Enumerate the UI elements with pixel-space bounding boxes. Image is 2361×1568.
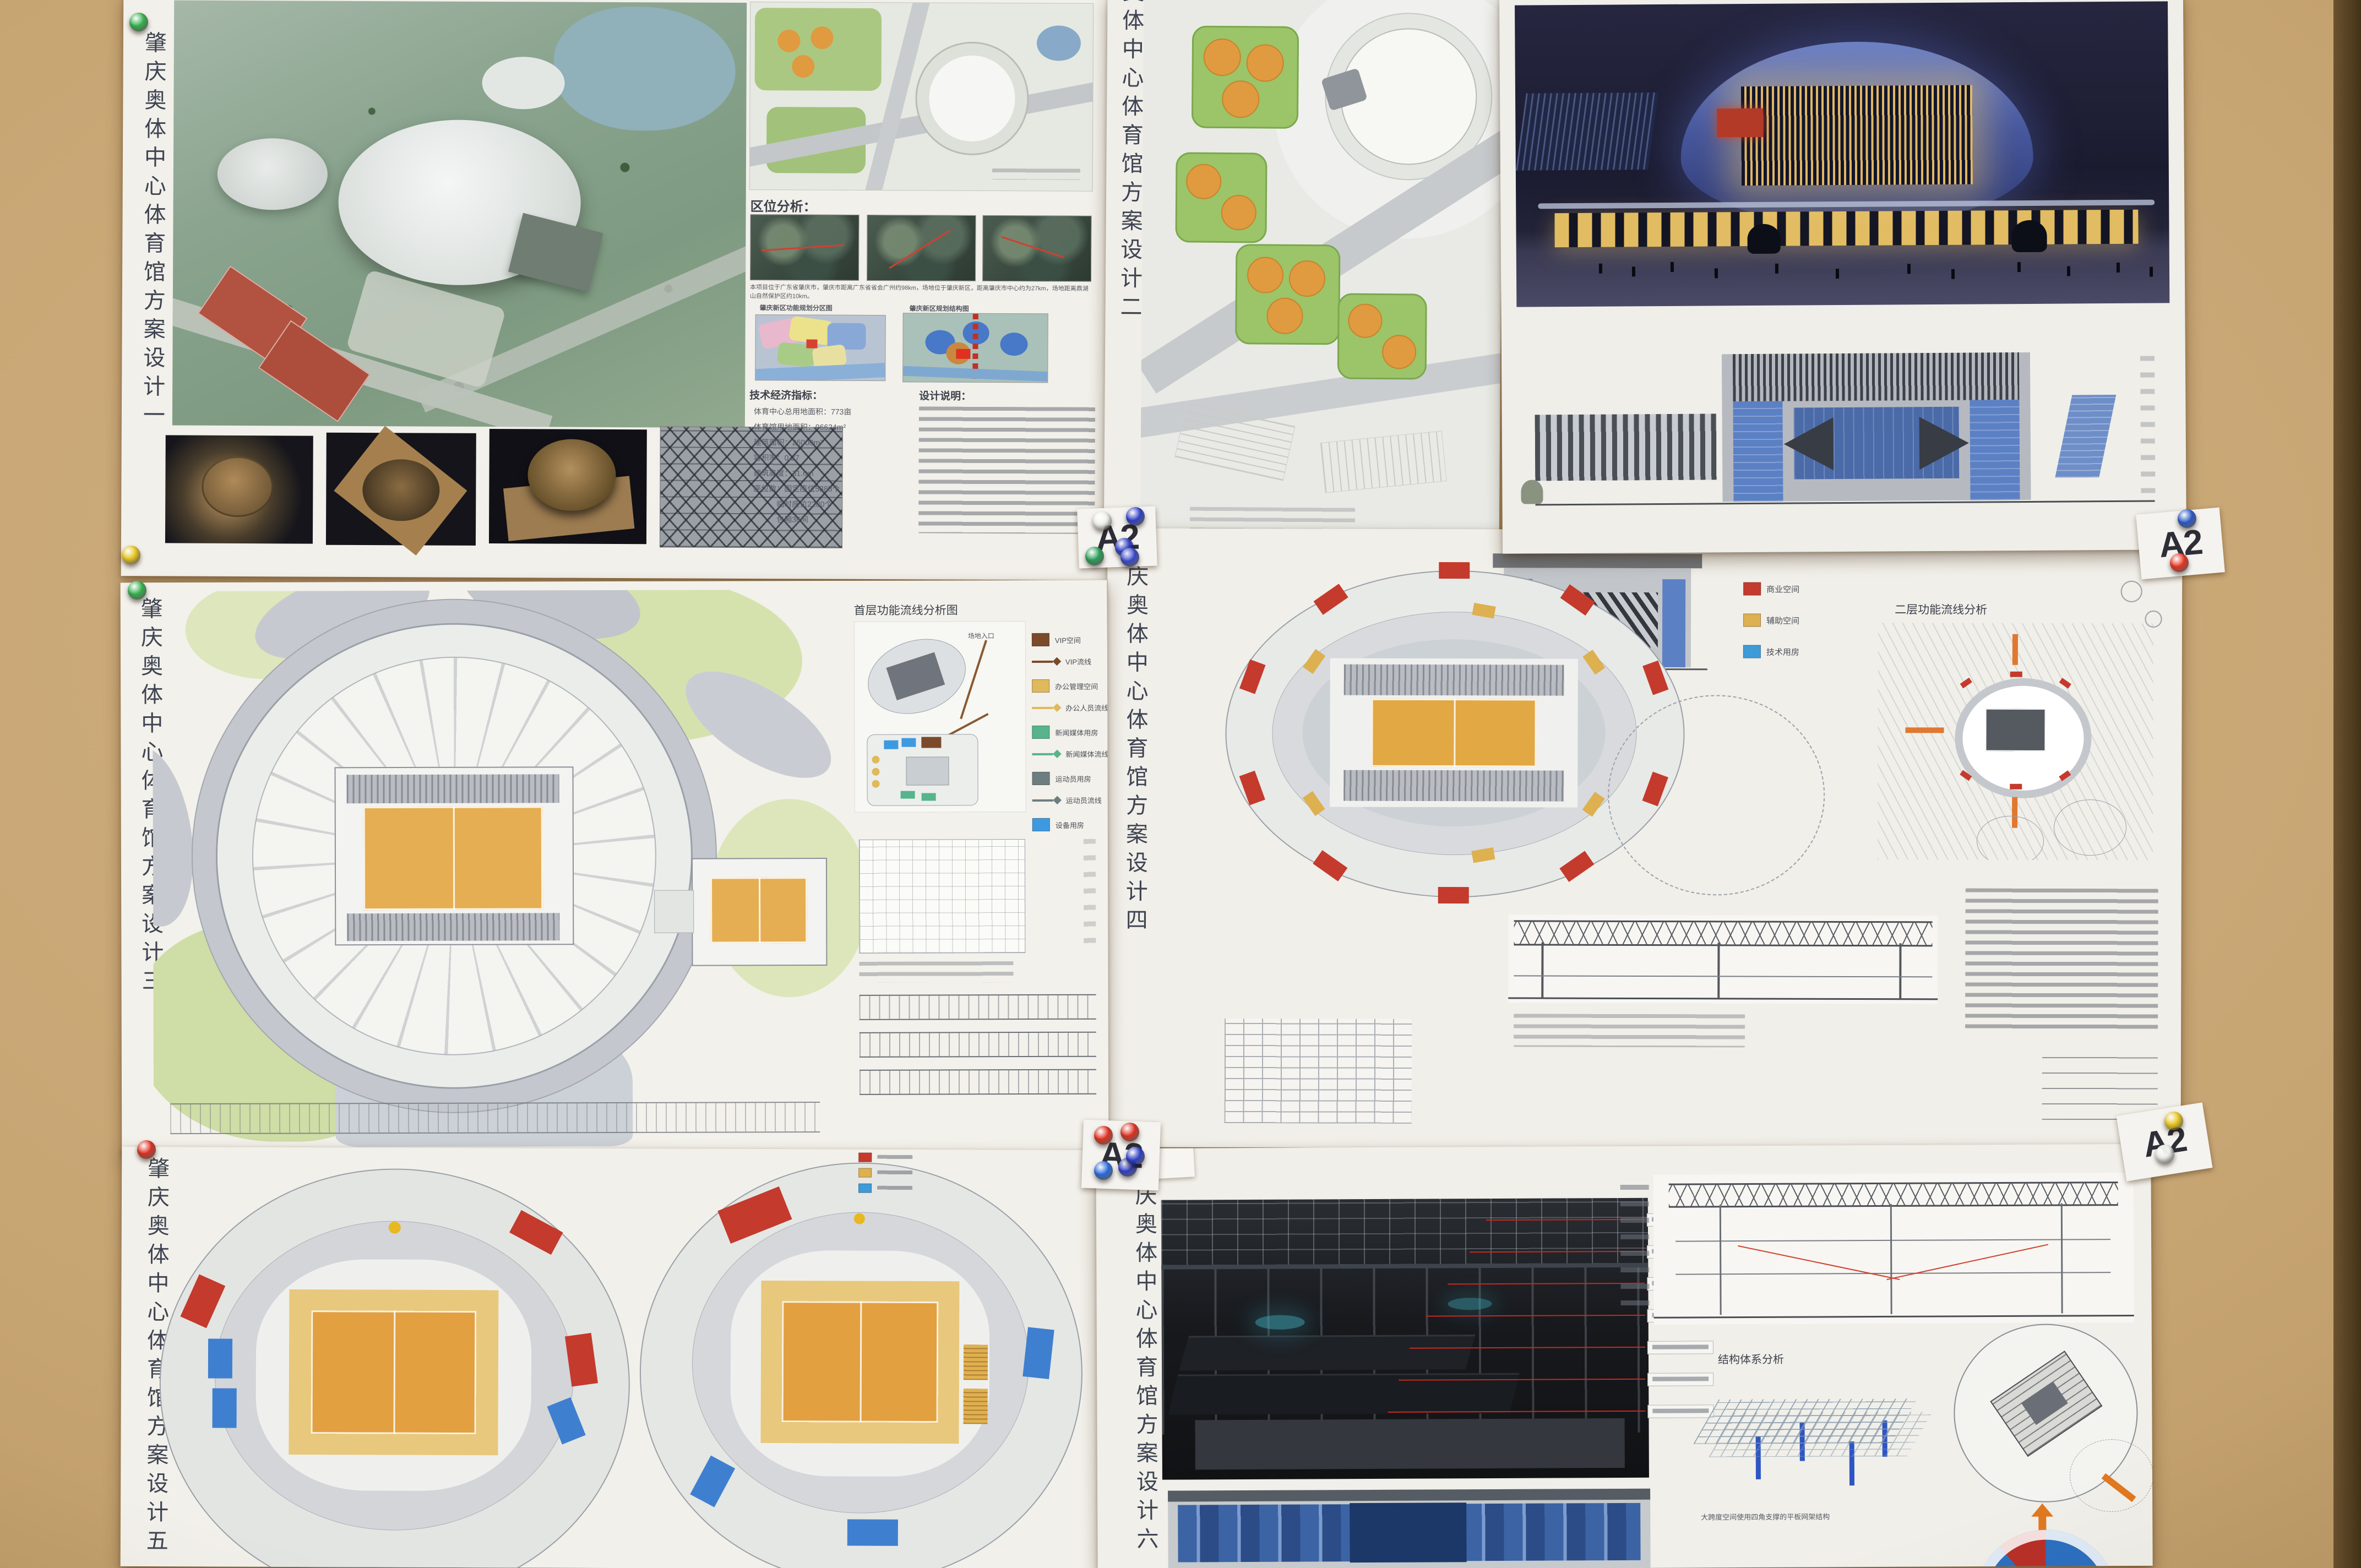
- ground-line: [1508, 997, 1938, 1000]
- arrow-triangle-left: [1784, 417, 1834, 471]
- glass-tower: [1970, 400, 2020, 500]
- section-strip: [859, 994, 1096, 1020]
- leader-line: [1388, 1411, 1645, 1413]
- pushpin-blue: [1120, 548, 1139, 567]
- section-strip: [170, 1102, 820, 1134]
- legend-arrow: [1032, 799, 1053, 801]
- legend-swatch: [1743, 582, 1761, 595]
- sightline: [1886, 1244, 2048, 1280]
- legend-row: 运动员用房: [1032, 772, 1091, 785]
- plan-notes-bar: [1190, 507, 1355, 530]
- arena-floor: [1195, 1418, 1624, 1469]
- section-row-labels: [1620, 1185, 1650, 1317]
- stadium-plan-a: [159, 1168, 634, 1568]
- glow-slat-band: [1741, 85, 1973, 186]
- floor2-analysis-heading: 二层功能流线分析: [1895, 601, 1987, 617]
- tree-sketch: [1521, 480, 1543, 504]
- office-arc: [872, 756, 879, 764]
- pushpin-blue: [1126, 507, 1145, 526]
- satellite-image: [750, 214, 859, 281]
- wing-stripes: [1535, 413, 1717, 481]
- court-circle: [1204, 39, 1241, 76]
- pushpin-blue: [2178, 509, 2196, 528]
- stadium-circle: [915, 41, 1029, 155]
- route-arrow: [1001, 236, 1064, 258]
- annotation-tag: [1647, 1341, 1713, 1354]
- poster-scheme2-siteplan: 奥体中心体育馆方案设计二: [1103, 0, 1503, 559]
- indicators-heading: 技术经济指标：: [749, 387, 823, 402]
- legend-label-bar: [877, 1185, 912, 1191]
- pushpin-red: [137, 1140, 156, 1159]
- column: [1899, 943, 1901, 998]
- legend-row: 办公管理空间: [1032, 679, 1098, 693]
- ground-line: [1536, 500, 2155, 506]
- commercial-block: [1439, 562, 1470, 579]
- legend-row: VIP流线: [1032, 656, 1091, 667]
- pushpin-green: [129, 13, 148, 31]
- circulation-analysis-map: 场地入口: [854, 621, 1026, 813]
- indicator-line: 座位数：固定座位5388个: [753, 483, 840, 494]
- pushpin-yellow: [2164, 1112, 2183, 1130]
- court-circle: [1222, 80, 1259, 118]
- gym-drum: [1680, 41, 2033, 225]
- river: [755, 363, 885, 381]
- media-screen: [1717, 108, 1763, 138]
- court-circle: [1246, 44, 1283, 81]
- indicator-line: 包厢36间: [776, 514, 808, 525]
- lake-dot: [1037, 25, 1081, 61]
- legend-arrow: [1032, 753, 1053, 755]
- entrance-label: 场地入口: [968, 631, 994, 641]
- poster-scheme2-renders: [1499, 0, 2186, 554]
- legend-label: 技术用房: [1766, 646, 1799, 657]
- parking-lines: [1320, 431, 1447, 493]
- truss-band: [1669, 1182, 2118, 1208]
- center-block: [1350, 1502, 1466, 1562]
- floor2-analysis-diagram: [1878, 623, 2153, 860]
- legend-row: [858, 1153, 912, 1162]
- poster1-title: 肇庆奥体中心体育馆方案设计一: [136, 31, 170, 432]
- orange-flow-arrow: [2012, 634, 2018, 665]
- arena-court: [1371, 699, 1536, 767]
- court-circle: [1289, 260, 1325, 297]
- court-circle: [1221, 195, 1256, 230]
- indicator-line: 建筑高度：31.6m: [753, 467, 813, 479]
- dimension-marks: [1084, 839, 1096, 949]
- leader-line: [1470, 1251, 1645, 1253]
- legend-arrow: [1032, 706, 1053, 709]
- grid-plane: [1709, 1412, 1933, 1457]
- stadium-floor-plan: [1189, 556, 1730, 921]
- mini-court: [906, 756, 949, 785]
- project-site-marker: [956, 349, 970, 359]
- model-photo: [326, 433, 476, 546]
- center-dot: [854, 1213, 865, 1224]
- legend-row: 办公人员流线: [1032, 703, 1108, 713]
- cork-wall: 肇庆奥体中心体育馆方案设计一: [0, 0, 2361, 1568]
- drawing-notes: [859, 961, 1013, 983]
- court-patch: [1192, 26, 1299, 129]
- pushpin-red: [1094, 1126, 1113, 1145]
- tree-silhouette: [2011, 220, 2047, 252]
- seating-band: [347, 774, 559, 803]
- aerial-rendering: [172, 0, 747, 428]
- legend-row: 辅助空间: [1743, 613, 1799, 627]
- vip-path: [960, 640, 987, 719]
- legend-swatch: [1032, 679, 1049, 693]
- media-room: [922, 793, 936, 801]
- seating-band: [1344, 665, 1564, 696]
- legend-swatch: [1032, 726, 1049, 739]
- legend-label: VIP空间: [1055, 634, 1081, 645]
- design-notes-text: [1965, 889, 2158, 1032]
- secondary-dome: [217, 138, 328, 210]
- annotation-row: [1410, 1341, 1701, 1354]
- section-strip: [859, 1032, 1096, 1058]
- faint-road-circle: [2070, 1439, 2153, 1512]
- red-tick: [2010, 784, 2022, 790]
- model-roof: [202, 456, 273, 518]
- stair-cluster: [964, 1389, 988, 1424]
- section-notes: [1514, 1014, 1745, 1047]
- column: [1890, 1204, 1892, 1314]
- podium-lights: [1554, 210, 2138, 247]
- blue-block: [208, 1338, 232, 1378]
- route-arrow: [889, 230, 950, 269]
- tree-silhouette: [1747, 224, 1780, 254]
- legend-arrowhead: [1053, 657, 1062, 666]
- indicator-line: 容积率：0.27: [754, 452, 799, 464]
- mini-court: [1985, 709, 2046, 752]
- legend-label: 办公管理空间: [1055, 680, 1098, 691]
- poster4-title: 肇庆奥体中心体育馆方案设计四: [1119, 536, 1152, 937]
- legend-label: 运动员流线: [1066, 795, 1102, 805]
- blue-block: [1022, 1327, 1054, 1379]
- mini-stadium-plan: [858, 627, 975, 726]
- poster6-title: 庆奥体中心体育馆方案设计六: [1128, 1184, 1162, 1556]
- dimension-marks: [2140, 356, 2156, 494]
- space-frame-diagram: [1689, 1370, 1935, 1509]
- blue-block: [847, 1520, 898, 1546]
- model-roof: [527, 439, 616, 511]
- media-room: [901, 791, 915, 799]
- dashed-site-circle: [1608, 695, 1825, 896]
- floor-line: [1675, 1239, 2110, 1242]
- long-section-drawing: [1653, 1173, 2134, 1325]
- legend-swatch: [1743, 613, 1761, 627]
- blue-block: [213, 1388, 237, 1428]
- oval-site-plan: [1954, 1324, 2138, 1502]
- arena-court: [311, 1310, 477, 1434]
- small-hall-roof: [482, 57, 564, 110]
- floor-line: [1675, 1272, 2110, 1275]
- main-elevation-drawing: [1535, 345, 2155, 514]
- pushpin-white: [1093, 511, 1112, 530]
- roof-band: [1168, 1489, 1650, 1502]
- red-tick: [1960, 678, 1972, 689]
- structure-analysis-heading: 结构体系分析: [1718, 1351, 1784, 1367]
- stair-cluster: [964, 1344, 988, 1380]
- legend-row: 新闻媒体用房: [1032, 726, 1098, 739]
- court-patch: [1337, 293, 1427, 379]
- pushpin-green: [128, 581, 146, 600]
- legend-swatch: [858, 1184, 872, 1193]
- legend-row: [858, 1168, 912, 1178]
- center-dot: [389, 1222, 401, 1234]
- legend-row: 运动员流线: [1032, 795, 1102, 805]
- legend-swatch: [1032, 633, 1049, 646]
- legend-label: 设备用房: [1056, 819, 1084, 830]
- red-tick: [2059, 678, 2071, 689]
- legend-row: 商业空间: [1743, 582, 1799, 595]
- column: [1720, 1205, 1722, 1315]
- leader-line: [1399, 1379, 1645, 1381]
- equipment-room: [884, 741, 898, 749]
- poster-scheme5: 肇庆奥体中心体育馆方案设计五: [121, 1147, 1101, 1568]
- concept-sketch: [2115, 569, 2175, 652]
- section-strip: [859, 1069, 1096, 1095]
- scheme2-site-plan: [1140, 0, 1503, 556]
- model-photo: [489, 429, 647, 544]
- court-circle: [1348, 304, 1382, 338]
- court-circle: [1186, 164, 1221, 199]
- legend-swatch: [1032, 818, 1050, 831]
- poster-scheme3: 肇庆奥体中心体育馆方案设计三 首层功能流线分析图: [121, 580, 1109, 1156]
- legend-label: 运动员用房: [1056, 773, 1091, 783]
- site-plan: [749, 2, 1094, 192]
- design-notes-heading: 设计说明：: [919, 388, 971, 402]
- connector: [654, 890, 694, 933]
- pushpin-red: [1120, 1123, 1139, 1141]
- red-tick: [2010, 672, 2022, 677]
- indicator-line: 体育中心总用地面积：773亩: [754, 406, 851, 417]
- a2-size-note: A2: [2117, 1102, 2213, 1181]
- legend-row: 新闻媒体流线: [1032, 749, 1108, 759]
- court-circle: [1247, 257, 1283, 293]
- wall-edge-strip: [2333, 0, 2361, 1568]
- crowd-figures: [1599, 264, 1602, 274]
- legend-row: VIP空间: [1032, 633, 1081, 646]
- sectional-perspective-rendering: [1161, 1198, 1649, 1480]
- ground-line: [1654, 1315, 2134, 1319]
- arena-court: [363, 806, 543, 910]
- leader-line: [1410, 1347, 1645, 1349]
- orange-flow-arrow: [1906, 727, 1944, 733]
- floor1-analysis-heading: 首层功能流线分析图: [854, 601, 958, 618]
- poster-scheme4: 肇庆奥体中心体育馆方案设计四 商业空间 辅助空间 技术用房 二层功能流线分析: [1106, 528, 2183, 1150]
- legend-label-bar: [877, 1155, 912, 1160]
- legend-arrowhead: [1053, 750, 1062, 759]
- stadium-plan-b: [639, 1162, 1087, 1568]
- annotation-row: [1388, 1404, 1701, 1418]
- satellite-caption: 本项目位于广东省肇庆市，肇庆市距离广东省省会广州约98km，场地位于肇庆新区，距…: [750, 284, 1091, 303]
- pushpin-yellow: [122, 546, 140, 564]
- zoning-map: [755, 314, 886, 381]
- equipment-room: [901, 738, 916, 747]
- sightline: [1738, 1245, 1900, 1280]
- design-notes-text: [918, 406, 1095, 533]
- training-court: [710, 877, 807, 943]
- model-roof: [362, 459, 439, 521]
- arrow-triangle-right: [1919, 417, 1970, 470]
- commercial-block: [1438, 887, 1469, 903]
- seating-band: [347, 913, 559, 941]
- stand-structure: [1516, 92, 1658, 171]
- mini-gym-plan: [867, 734, 978, 806]
- legend-label: 办公人员流线: [1065, 703, 1108, 713]
- indicator-line: 体育馆用地面积：96624m²: [754, 421, 846, 433]
- legend-swatch: [858, 1153, 872, 1162]
- night-rendering: [1515, 1, 2169, 307]
- annotation-row: [1399, 1373, 1701, 1386]
- legend-arrowhead: [1053, 796, 1062, 805]
- legend-arrow: [1032, 660, 1053, 662]
- legend-label: VIP流线: [1065, 656, 1091, 667]
- truss-band: [1514, 920, 1932, 946]
- indicator-line: 临时座位2280个: [776, 498, 832, 510]
- space-frame-caption: 大跨度空间使用四角支撑的平板网架结构: [1701, 1512, 1830, 1523]
- glass-tower: [1733, 401, 1783, 502]
- legend-swatch: [1032, 772, 1050, 785]
- structure-map: [902, 313, 1048, 383]
- pushpin-blue: [1126, 1147, 1145, 1166]
- court-dot-cluster: [767, 19, 866, 80]
- legend-label: 新闻媒体用房: [1055, 727, 1098, 737]
- project-site-marker: [807, 340, 818, 349]
- seating-band: [1343, 770, 1564, 802]
- circular-plan: [153, 590, 870, 1147]
- route-arrow: [761, 244, 844, 252]
- legend-row: 设备用房: [1032, 818, 1084, 831]
- training-hall-layout-grid: [859, 839, 1026, 954]
- truss-section-drawing: [1508, 914, 1938, 1004]
- functional-zone-circle: [1974, 1529, 2118, 1568]
- legend-label: 辅助空间: [1766, 614, 1799, 626]
- floor-line: [1514, 975, 1932, 977]
- node-blob: [1000, 333, 1027, 356]
- legend-label-bar: [877, 1170, 912, 1175]
- roof-slat-band: [1733, 352, 2020, 401]
- legend-label: 新闻媒体流线: [1065, 749, 1108, 759]
- column: [2061, 1204, 2063, 1314]
- column: [1717, 943, 1720, 998]
- court-patch: [1235, 244, 1340, 345]
- pushpin-white: [2156, 1145, 2174, 1163]
- faint-circle: [2054, 799, 2126, 856]
- poster-scheme6: 庆奥体中心体育馆方案设计六: [1096, 1144, 2152, 1568]
- leader-line: [1448, 1283, 1645, 1285]
- poster-scheme1: 肇庆奥体中心体育馆方案设计一: [121, 0, 1111, 580]
- mini-roof: [886, 652, 945, 700]
- blue-elevation-drawing: [1168, 1489, 1651, 1568]
- faint-circle: [1977, 816, 2044, 861]
- model-photo: [165, 435, 313, 543]
- legend-swatch: [1743, 645, 1761, 658]
- legend-swatch: [858, 1168, 872, 1178]
- plan-caption-bar: [992, 168, 1080, 180]
- court-circle: [1266, 298, 1303, 334]
- column: [1541, 943, 1543, 998]
- location-analysis-heading: 区位分析：: [750, 195, 817, 215]
- legend-label: 商业空间: [1766, 583, 1799, 595]
- right-tower: [2055, 395, 2116, 478]
- satellite-image: [982, 215, 1092, 282]
- pushpin-blue: [1094, 1161, 1113, 1180]
- detail-lines: [2042, 1054, 2158, 1120]
- legend-row: 技术用房: [1743, 645, 1799, 658]
- pushpin-red: [2170, 553, 2189, 572]
- vip-room: [921, 737, 941, 748]
- satellite-image: [867, 215, 976, 281]
- court-patch: [1175, 152, 1267, 243]
- pushpin-green: [1085, 547, 1104, 565]
- indicator-line: 建筑面积：26000m²: [754, 437, 823, 448]
- stair-detail-drawing: [1225, 1019, 1412, 1124]
- court-circle: [1382, 335, 1416, 369]
- arena-court: [782, 1301, 939, 1423]
- legend-row: [858, 1184, 912, 1193]
- map1-caption: 肇庆新区功能规划分区图: [760, 303, 833, 313]
- leader-line: [1426, 1315, 1645, 1317]
- legend-arrowhead: [1053, 704, 1062, 712]
